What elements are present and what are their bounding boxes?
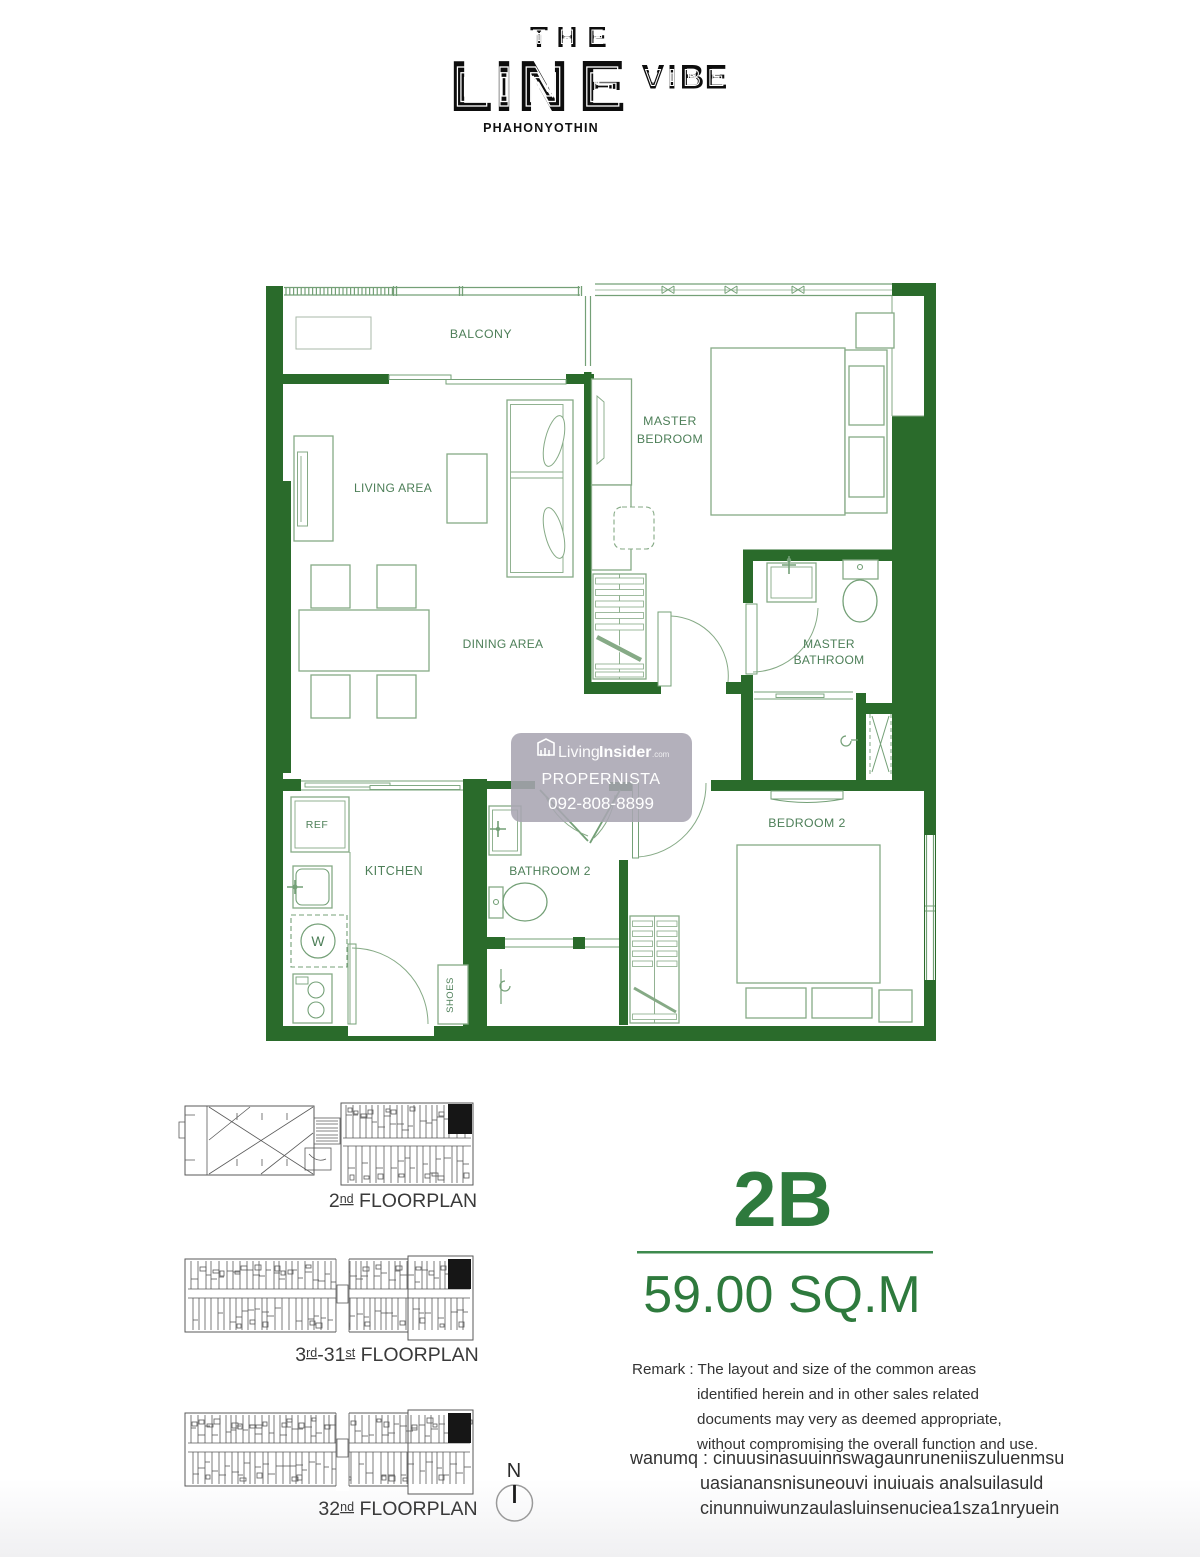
svg-text:32nd FLOORPLAN: 32nd FLOORPLAN <box>318 1498 477 1520</box>
svg-text:092-808-8899: 092-808-8899 <box>548 794 654 813</box>
svg-text:SHOES: SHOES <box>445 977 456 1013</box>
svg-text:I: I <box>670 71 673 85</box>
svg-text:59.00 SQ.M: 59.00 SQ.M <box>643 1266 920 1324</box>
svg-text:2nd FLOORPLAN: 2nd FLOORPLAN <box>329 1190 477 1212</box>
svg-text:3rd-31st FLOORPLAN: 3rd-31st FLOORPLAN <box>295 1344 478 1366</box>
svg-text:BALCONY: BALCONY <box>450 327 512 341</box>
svg-text:T: T <box>536 33 542 44</box>
svg-text:B: B <box>688 71 697 85</box>
svg-text:I: I <box>500 72 508 102</box>
svg-text:2B: 2B <box>733 1155 833 1243</box>
svg-text:REF: REF <box>306 819 329 831</box>
svg-text:Insider: Insider <box>599 744 651 761</box>
svg-text:E: E <box>593 72 611 102</box>
svg-text:.com: .com <box>652 750 670 759</box>
svg-text:PROPERNISTA: PROPERNISTA <box>542 771 661 788</box>
svg-text:MASTER: MASTER <box>643 414 697 428</box>
svg-text:BEDROOM 2: BEDROOM 2 <box>768 816 845 830</box>
svg-text:Living: Living <box>558 744 600 761</box>
svg-text:uasianansnisuneouvi inuiuais a: uasianansnisuneouvi inuiuais analsuilasu… <box>700 1473 1043 1493</box>
svg-text:DINING AREA: DINING AREA <box>463 637 544 651</box>
svg-text:E: E <box>594 33 601 44</box>
svg-text:V: V <box>649 71 657 85</box>
svg-text:LIVING AREA: LIVING AREA <box>354 481 432 495</box>
svg-text:Remark : The layout and size o: Remark : The layout and size of the comm… <box>632 1361 977 1378</box>
svg-text:E: E <box>712 71 720 85</box>
svg-text:identified herein and in other: identified herein and in other sales rel… <box>697 1386 979 1403</box>
svg-text:N: N <box>507 1460 521 1482</box>
svg-text:BEDROOM: BEDROOM <box>637 432 703 446</box>
svg-text:cinunnuiwunzaulasluinsenuciea1: cinunnuiwunzaulasluinsenuciea1sza1nryuei… <box>700 1498 1059 1518</box>
svg-text:wanumq : cinuusinasuuinnswagau: wanumq : cinuusinasuuinnswagaunruneniisz… <box>629 1448 1064 1468</box>
svg-text:PHAHONYOTHIN: PHAHONYOTHIN <box>483 121 599 135</box>
svg-text:documents may very as deemed a: documents may very as deemed appropriate… <box>697 1411 1002 1428</box>
svg-text:BATHROOM 2: BATHROOM 2 <box>509 864 590 878</box>
svg-text:MASTER: MASTER <box>803 637 855 651</box>
svg-text:BATHROOM: BATHROOM <box>794 653 865 667</box>
svg-text:L: L <box>463 72 480 102</box>
svg-text:H: H <box>563 33 570 44</box>
svg-text:W: W <box>311 933 325 949</box>
svg-text:KITCHEN: KITCHEN <box>365 864 423 878</box>
svg-text:N: N <box>533 72 553 102</box>
